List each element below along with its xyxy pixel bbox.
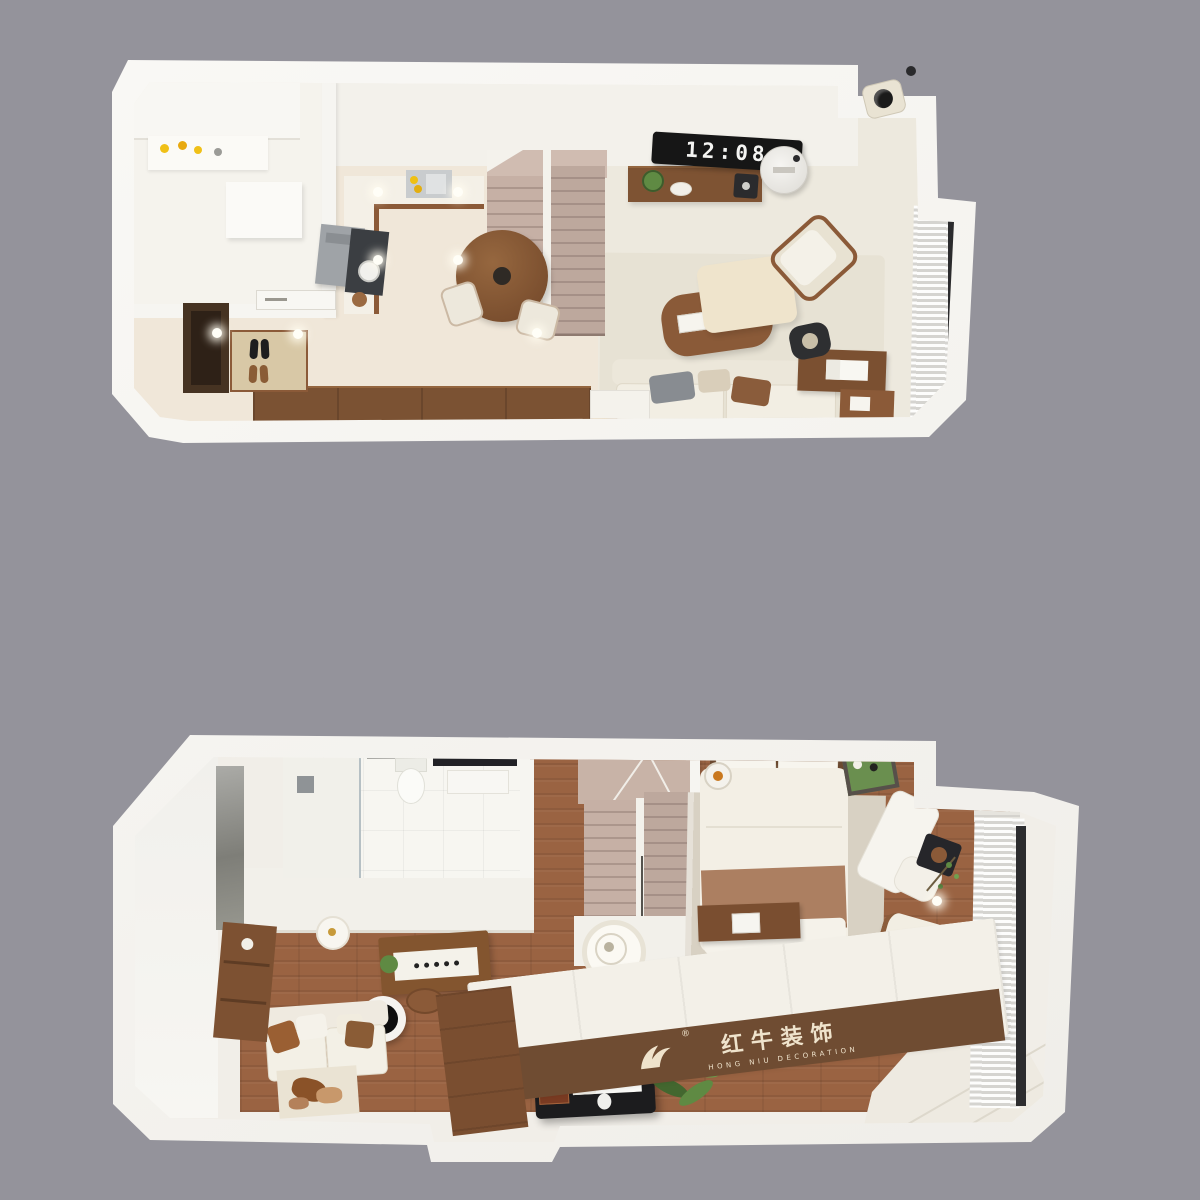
pendant-center [604, 942, 614, 952]
duvet-fold [706, 826, 842, 828]
bedside-lamp [704, 762, 732, 790]
pillow-white [295, 1013, 328, 1041]
piano-pedal-knob [597, 1093, 612, 1110]
window-glass [1016, 826, 1026, 1106]
toilet-bowl [397, 768, 425, 804]
shower-area [283, 750, 361, 878]
speaker-dot [433, 961, 438, 966]
laptop [732, 913, 761, 934]
shower-head [297, 776, 314, 793]
wall-cabinet [213, 922, 277, 1042]
stair-rail [641, 856, 643, 918]
wall-light [932, 896, 942, 906]
vanity-counter [447, 770, 509, 794]
rug-pattern [316, 1086, 343, 1104]
speaker-dot [423, 962, 428, 967]
abstract-rug [276, 1065, 359, 1118]
bathroom-wall [520, 748, 534, 878]
marble-wall [216, 766, 244, 930]
decor-vase [241, 938, 254, 951]
speaker-dot [443, 961, 448, 966]
cabinet-shelf [224, 960, 270, 967]
leaf [946, 862, 952, 868]
rug-pattern [288, 1097, 309, 1110]
bed-bench-desk [697, 902, 800, 942]
scene-canvas: 12:08 [0, 0, 1200, 1200]
desk-speaker-panel [393, 947, 479, 981]
ceiling-lamp [316, 916, 350, 950]
speaker-dot [413, 963, 418, 968]
decor-camera [869, 763, 878, 772]
stair-flight-right [644, 792, 690, 920]
bathroom [283, 750, 523, 878]
leaf [954, 874, 959, 879]
lower-floor-plan: ® 红牛装饰 HONG NIU DECORATION [0, 0, 1200, 1200]
lamp-bulb [713, 771, 723, 781]
stair-flight-left [584, 800, 638, 918]
speaker-dot [453, 960, 458, 965]
lamp-center [328, 928, 336, 936]
registered-mark: ® [681, 1029, 691, 1040]
leaf [938, 884, 943, 889]
bull-logo [634, 1040, 677, 1075]
pillow-brown [344, 1020, 375, 1049]
cabinet-shelf [220, 998, 266, 1005]
lower-interior: ® 红牛装饰 HONG NIU DECORATION [0, 0, 1200, 1200]
